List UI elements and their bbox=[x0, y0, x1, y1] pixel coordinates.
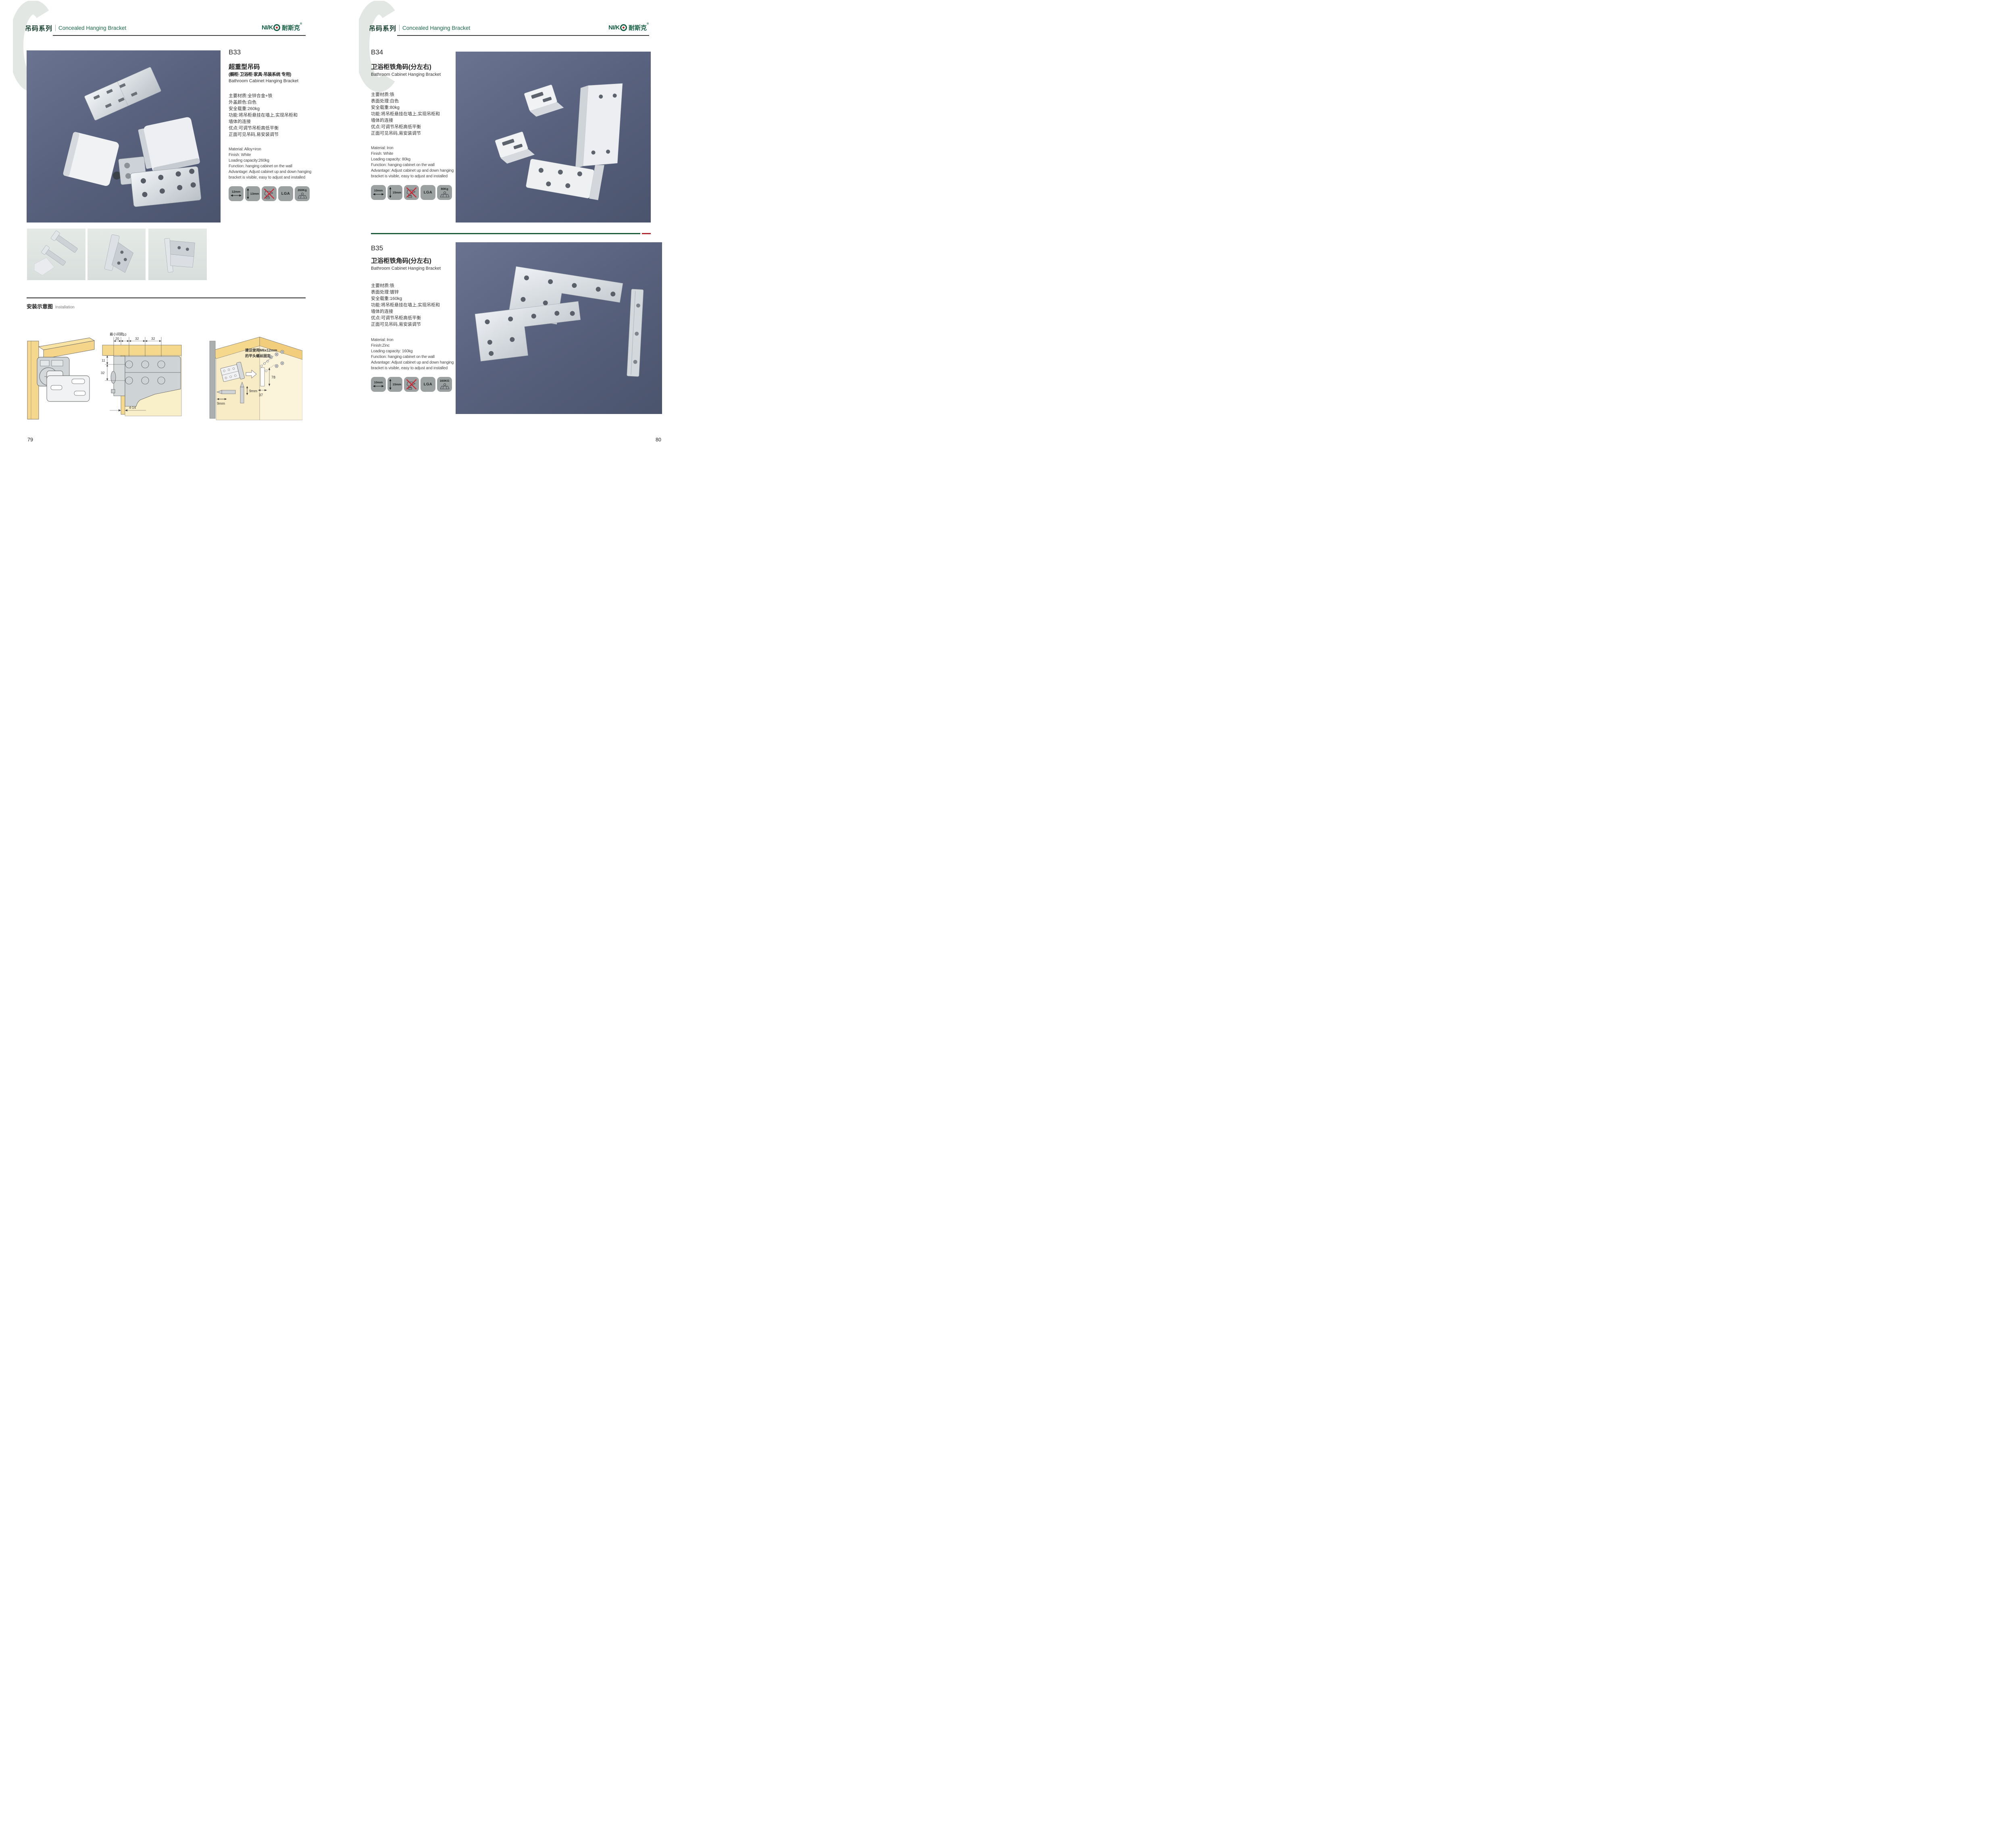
dim-label: 4-14 bbox=[129, 406, 136, 410]
product-code: B34 bbox=[371, 48, 455, 56]
no-drill-icon bbox=[405, 378, 418, 391]
page-header: 吊码系列 Concealed Hanging Bracket bbox=[25, 23, 126, 33]
spec-line: 功能:将吊柜悬挂在墙上,实现吊柜和 bbox=[229, 112, 312, 119]
spec-line: Advantage: Adjust cabinet up and down ha… bbox=[371, 360, 455, 366]
b33-thumbnail-2 bbox=[87, 229, 146, 280]
series-title-cn: 吊码系列 bbox=[369, 23, 396, 33]
product-title-cn: 卫浴柜铁角码(分左右) bbox=[371, 63, 455, 71]
spec-line: 优点:可调节吊柜高低平衡 bbox=[371, 124, 455, 130]
product-title-cn: 超重型吊码 bbox=[229, 63, 312, 71]
b33-info: B33 超重型吊码 (橱柜·卫浴柜·家具·吊装系统 专用) Bathroom C… bbox=[229, 48, 312, 201]
b33-photo-art bbox=[27, 50, 221, 223]
header-rule bbox=[397, 35, 649, 36]
dim-label: 78 bbox=[271, 375, 275, 379]
dim-label: 9mm bbox=[249, 389, 257, 393]
spec-line: 安全载重:260kg bbox=[229, 106, 312, 112]
dim-label: 32 bbox=[135, 337, 139, 341]
header-rule bbox=[53, 35, 306, 36]
badge-width-label: 12mm bbox=[232, 190, 241, 193]
b33-product-photo bbox=[27, 50, 221, 223]
weight-icon bbox=[439, 383, 450, 389]
dim-label: 37 bbox=[259, 393, 263, 397]
badge-load: 80Kg bbox=[437, 185, 452, 200]
spec-line: 表面处理:白色 bbox=[371, 98, 455, 104]
product-title-en: Bathroom Cabinet Hanging Bracket bbox=[371, 72, 455, 77]
badge-no-drill bbox=[262, 186, 277, 201]
spec-line: 主要材质:铁 bbox=[371, 283, 455, 289]
dim-label: 32 bbox=[101, 371, 105, 375]
spec-line: 优点:可调节吊柜高低平衡 bbox=[371, 315, 455, 321]
b34-photo-art bbox=[456, 52, 651, 223]
badge-load-label: 80Kg bbox=[441, 187, 448, 191]
specs-cn: 主要材质:铁 表面处理:白色 安全载重:80kg 功能:将吊柜悬挂在墙上,实现吊… bbox=[371, 92, 455, 137]
badge-panel-width: 10mm bbox=[371, 185, 386, 200]
edge-profile bbox=[627, 289, 644, 376]
spec-line: Material: Iron bbox=[371, 337, 455, 343]
b33-thumbnail-3 bbox=[148, 229, 207, 280]
spec-line: 墙体的连接 bbox=[371, 308, 455, 315]
b35-badges: 10mm 15mm LGA 160KG bbox=[371, 377, 455, 392]
b35-info: B35 卫浴柜铁角码(分左右) Bathroom Cabinet Hanging… bbox=[371, 244, 455, 392]
angle-bracket-right bbox=[572, 79, 626, 173]
spec-line: 外盖颜色:白色 bbox=[229, 99, 312, 106]
brand-logo: NI/K 耐斯克 ® bbox=[262, 23, 302, 32]
badge-cert: LGA bbox=[421, 377, 435, 392]
b33-thumbnail-1 bbox=[27, 229, 85, 280]
product-code: B35 bbox=[371, 244, 455, 252]
white-cover-right bbox=[137, 116, 200, 175]
horizontal-arrow-icon bbox=[373, 385, 384, 388]
badge-cert-label: LGA bbox=[281, 192, 290, 196]
b33-badges: 12mm 13mm LGA 260Kg bbox=[229, 186, 312, 201]
vertical-arrow-icon bbox=[389, 187, 392, 198]
dim-label: 20 bbox=[115, 337, 119, 341]
series-title-cn: 吊码系列 bbox=[25, 23, 52, 33]
product-title-en: Bathroom Cabinet Hanging Bracket bbox=[229, 78, 312, 84]
section-divider-green bbox=[371, 233, 640, 234]
installation-header: 安装示意图 Installation bbox=[27, 302, 75, 310]
spec-line: Loading capacity:260kg bbox=[229, 158, 312, 164]
badge-load: 260Kg bbox=[295, 186, 310, 201]
badge-height-label: 13mm bbox=[250, 192, 259, 196]
installation-rule bbox=[27, 297, 306, 298]
installation-diagram-cross-section: 最小间距 20 10 32 32 11 32 4-14 bbox=[95, 331, 185, 423]
logo-target-icon bbox=[620, 24, 627, 31]
spec-line: 安全载重:80kg bbox=[371, 104, 455, 111]
l-plate-lower bbox=[475, 302, 584, 362]
vertical-arrow-icon bbox=[389, 379, 392, 390]
spec-line: Loading capacity: 160kg bbox=[371, 349, 455, 354]
thumbnail-art bbox=[87, 229, 146, 280]
brand-logo: NI/K 耐斯克 ® bbox=[608, 23, 649, 32]
horizontal-arrow-icon bbox=[231, 194, 242, 197]
badge-height-label: 15mm bbox=[393, 383, 402, 386]
spec-line: Finish: White bbox=[229, 152, 312, 158]
horizontal-arrow-icon bbox=[373, 193, 384, 196]
logo-cn: 耐斯克 bbox=[282, 23, 300, 32]
dim-label: 最小间距 bbox=[110, 332, 124, 336]
specs-en: Material: Alloy+iron Finish: White Loadi… bbox=[229, 147, 312, 181]
product-subtitle-cn: (橱柜·卫浴柜·家具·吊装系统 专用) bbox=[229, 72, 312, 77]
page-header: 吊码系列 Concealed Hanging Bracket bbox=[369, 23, 470, 33]
white-cover-left bbox=[62, 131, 120, 187]
registered-mark: ® bbox=[647, 23, 649, 25]
installation-title-en: Installation bbox=[55, 305, 75, 310]
thumbnail-art bbox=[148, 229, 207, 280]
spec-line: Material: Alloy+iron bbox=[229, 147, 312, 152]
spec-line: 功能:将吊柜悬挂在墙上,实现吊柜和 bbox=[371, 302, 455, 308]
screw-note-line2: 的平头螺丝固定 bbox=[245, 354, 271, 358]
specs-en: Material: Iron Finish: White Loading cap… bbox=[371, 146, 455, 179]
b35-product-photo bbox=[456, 242, 662, 414]
spec-line: 主要材质:全锌合金+铁 bbox=[229, 93, 312, 99]
badge-width-label: 10mm bbox=[374, 381, 383, 384]
specs-cn: 主要材质:铁 表面处理:镀锌 安全载重:160kg 功能:将吊柜悬挂在墙上,实现… bbox=[371, 283, 455, 328]
spec-line: 主要材质:铁 bbox=[371, 92, 455, 98]
badge-panel-width: 10mm bbox=[371, 377, 386, 392]
b34-info: B34 卫浴柜铁角码(分左右) Bathroom Cabinet Hanging… bbox=[371, 48, 455, 200]
product-title-en: Bathroom Cabinet Hanging Bracket bbox=[371, 266, 455, 271]
spec-line: Material: Iron bbox=[371, 146, 455, 151]
spec-line: 优点:可调节吊柜高低平衡 bbox=[229, 125, 312, 131]
wall-plate bbox=[84, 67, 161, 121]
specs-en: Material: Iron Finish:Zinc Loading capac… bbox=[371, 337, 455, 371]
spec-line: 安全载重:160kg bbox=[371, 295, 455, 302]
spec-line: Function: hanging cabinet on the wall bbox=[371, 162, 455, 168]
spec-line: Finish:Zinc bbox=[371, 343, 455, 349]
z-clip-2 bbox=[495, 130, 535, 165]
page-number-right: 80 bbox=[656, 437, 661, 443]
series-title-en: Concealed Hanging Bracket bbox=[58, 25, 126, 31]
badge-width-label: 10mm bbox=[374, 189, 383, 192]
badge-height-label: 15mm bbox=[393, 191, 402, 194]
spec-line: Finish: White bbox=[371, 151, 455, 157]
spec-line: 墙体的连接 bbox=[229, 119, 312, 125]
dim-label: 32 bbox=[151, 337, 155, 341]
spec-line: 正面可见吊码,易安装调节 bbox=[371, 321, 455, 328]
badge-panel-height: 15mm bbox=[387, 185, 402, 200]
spec-line: 墙体的连接 bbox=[371, 117, 455, 124]
badge-load-label: 160KG bbox=[440, 379, 450, 383]
page-number-left: 79 bbox=[27, 437, 33, 443]
badge-load-label: 260Kg bbox=[298, 189, 307, 192]
b34-product-photo bbox=[456, 52, 651, 223]
weight-icon bbox=[439, 191, 450, 198]
no-drill-icon bbox=[405, 186, 418, 199]
product-title-cn: 卫浴柜铁角码(分左右) bbox=[371, 257, 455, 265]
spec-line: 正面可见吊码,易安装调节 bbox=[371, 130, 455, 137]
installation-title-cn: 安装示意图 bbox=[27, 302, 53, 310]
badge-no-drill bbox=[404, 185, 419, 200]
thumbnail-art bbox=[27, 229, 85, 280]
spec-line: bracket is visible, easy to adjust and i… bbox=[229, 175, 312, 181]
header-divider bbox=[55, 25, 56, 31]
installation-diagram-side bbox=[24, 332, 95, 423]
spec-line: 正面可见吊码,易安装调节 bbox=[229, 131, 312, 138]
spec-line: Function: hanging cabinet on the wall bbox=[229, 164, 312, 169]
b35-photo-art bbox=[456, 242, 662, 414]
spec-line: Function: hanging cabinet on the wall bbox=[371, 354, 455, 360]
specs-cn: 主要材质:全锌合金+铁 外盖颜色:白色 安全载重:260kg 功能:将吊柜悬挂在… bbox=[229, 93, 312, 138]
badge-cert: LGA bbox=[278, 186, 293, 201]
dim-label: 9mm bbox=[217, 401, 225, 406]
logo-latin: NI/K bbox=[608, 24, 620, 31]
registered-mark: ® bbox=[300, 23, 302, 25]
badge-cert-label: LGA bbox=[424, 383, 433, 386]
section-divider-red bbox=[642, 233, 651, 234]
badge-panel-height: 13mm bbox=[245, 186, 260, 201]
badge-panel-height: 15mm bbox=[387, 377, 402, 392]
logo-latin: NI/K bbox=[262, 24, 273, 31]
no-drill-icon bbox=[263, 187, 275, 200]
series-title-en: Concealed Hanging Bracket bbox=[402, 25, 470, 31]
spec-line: 功能:将吊柜悬挂在墙上,实现吊柜和 bbox=[371, 111, 455, 117]
badge-load: 160KG bbox=[437, 377, 452, 392]
spec-line: 表面处理:镀锌 bbox=[371, 289, 455, 295]
dim-label: 11 bbox=[102, 358, 105, 362]
catalog-spread: 吊码系列 Concealed Hanging Bracket NI/K 耐斯克 … bbox=[0, 0, 676, 462]
logo-cn: 耐斯克 bbox=[629, 23, 647, 32]
spec-line: Advantage: Adjust cabinet up and down ha… bbox=[371, 168, 455, 174]
b34-badges: 10mm 15mm LGA 80Kg bbox=[371, 185, 455, 200]
spec-line: Advantage: Adjust cabinet up and down ha… bbox=[229, 169, 312, 175]
spec-line: Loading capacity: 80kg bbox=[371, 157, 455, 162]
installation-diagram-corner: 建议使用M6x12mm 的平头螺丝固定 78 37 9mm 9mm bbox=[206, 331, 302, 422]
badge-panel-width: 12mm bbox=[229, 186, 244, 201]
spec-line: bracket is visible, easy to adjust and i… bbox=[371, 366, 455, 371]
badge-no-drill bbox=[404, 377, 419, 392]
vertical-arrow-icon bbox=[246, 188, 250, 199]
badge-cert: LGA bbox=[421, 185, 435, 200]
spec-line: bracket is visible, easy to adjust and i… bbox=[371, 174, 455, 179]
product-code: B33 bbox=[229, 48, 312, 56]
screw-note-line1: 建议使用M6x12mm bbox=[245, 348, 277, 352]
header-divider bbox=[399, 25, 400, 31]
weight-icon bbox=[297, 192, 308, 199]
badge-cert-label: LGA bbox=[424, 191, 433, 194]
dim-label: 10 bbox=[123, 333, 127, 337]
logo-target-icon bbox=[273, 24, 280, 31]
z-clip-1 bbox=[524, 83, 564, 118]
